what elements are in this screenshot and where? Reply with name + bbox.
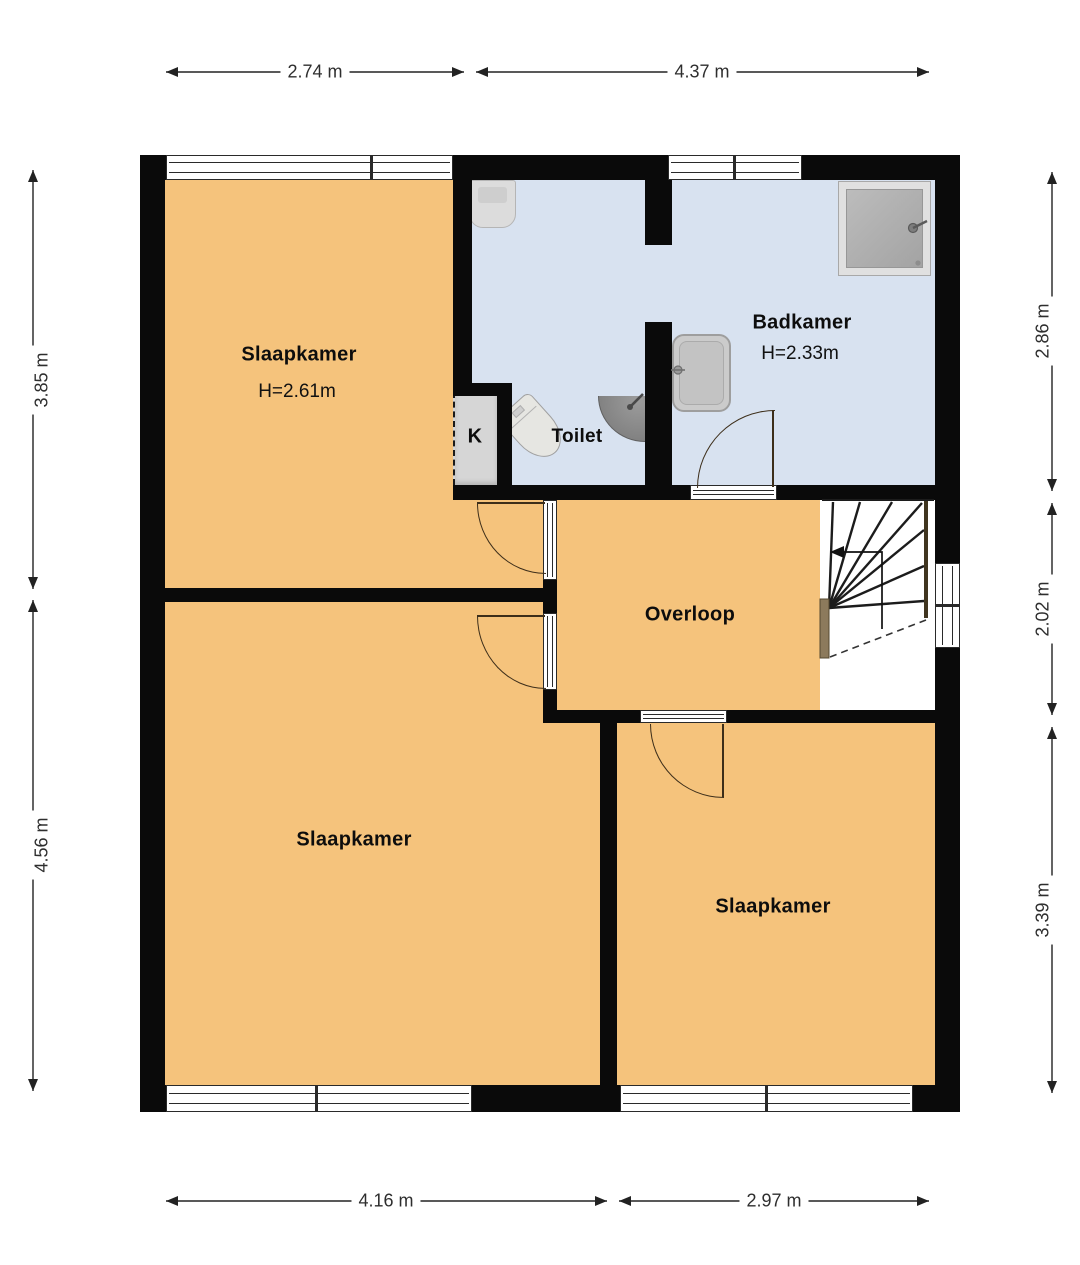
window-mullion	[370, 156, 373, 179]
stairwell-fill	[820, 500, 935, 712]
room-label-slaapkamer-bottom-left: Slaapkamer	[296, 829, 411, 852]
door-jamb-slaapkamer-bottom-right	[640, 710, 727, 723]
shower-floor	[846, 189, 923, 268]
dimension-top-2: 4.37 m	[667, 62, 736, 83]
wall-overloop-bottom-right	[727, 710, 935, 723]
wastafel-sink	[672, 334, 731, 412]
room-label-badkamer: Badkamer	[752, 312, 851, 335]
dimension-bottom-2: 2.97 m	[739, 1191, 808, 1212]
floor-plan: Slaapkamer H=2.61m Badkamer H=2.33m Toil…	[0, 0, 1080, 1265]
dimension-bottom-1: 4.16 m	[351, 1191, 420, 1212]
wall-overloop-bottom-left	[543, 710, 640, 723]
window-mullion	[765, 1086, 768, 1111]
window-badkamer	[668, 155, 802, 180]
shower-tray	[838, 181, 931, 276]
window-top-left	[166, 155, 453, 180]
wall-bath-bottom-right	[777, 485, 935, 500]
wall-bath-stub-top	[645, 180, 672, 245]
wall-outer-left	[140, 155, 165, 1112]
washbasin	[469, 180, 516, 228]
room-label-slaapkamer-bottom-right: Slaapkamer	[715, 896, 830, 919]
window-bottom-left	[166, 1085, 472, 1112]
dimension-right-2: 2.02 m	[1033, 574, 1054, 643]
wall-bedroom-bath	[453, 180, 472, 392]
sink-basin	[679, 341, 724, 405]
window-mullion	[936, 604, 959, 607]
wall-between-bottom-bedrooms	[600, 723, 617, 1085]
room-label-overloop: Overloop	[645, 604, 735, 627]
ceiling-height-badkamer: H=2.33m	[761, 343, 839, 365]
dimension-left-1: 3.85 m	[32, 345, 53, 414]
window-mullion	[315, 1086, 318, 1111]
dimension-top-1: 2.74 m	[280, 62, 349, 83]
wall-between-left-bedrooms	[140, 588, 545, 602]
window-stairwell	[935, 563, 960, 648]
wall-bath-stub-bottom	[645, 322, 672, 497]
window-mullion	[733, 156, 736, 179]
dimension-right-3: 3.39 m	[1033, 875, 1054, 944]
ceiling-height-slaapkamer-top: H=2.61m	[258, 381, 336, 403]
wall-bath-bottom-left	[453, 485, 690, 500]
wall-overloop-left-mid	[543, 580, 557, 613]
dimension-left-2: 4.56 m	[32, 810, 53, 879]
wall-kast-toilet	[497, 396, 512, 497]
room-label-kast: K	[468, 426, 483, 449]
wall-toilet-top	[453, 383, 512, 396]
washbasin-bowl	[478, 187, 507, 203]
room-label-toilet: Toilet	[551, 426, 602, 448]
dimension-right-1: 2.86 m	[1033, 296, 1054, 365]
room-label-slaapkamer-top: Slaapkamer	[241, 344, 356, 367]
window-bottom-right	[620, 1085, 913, 1112]
